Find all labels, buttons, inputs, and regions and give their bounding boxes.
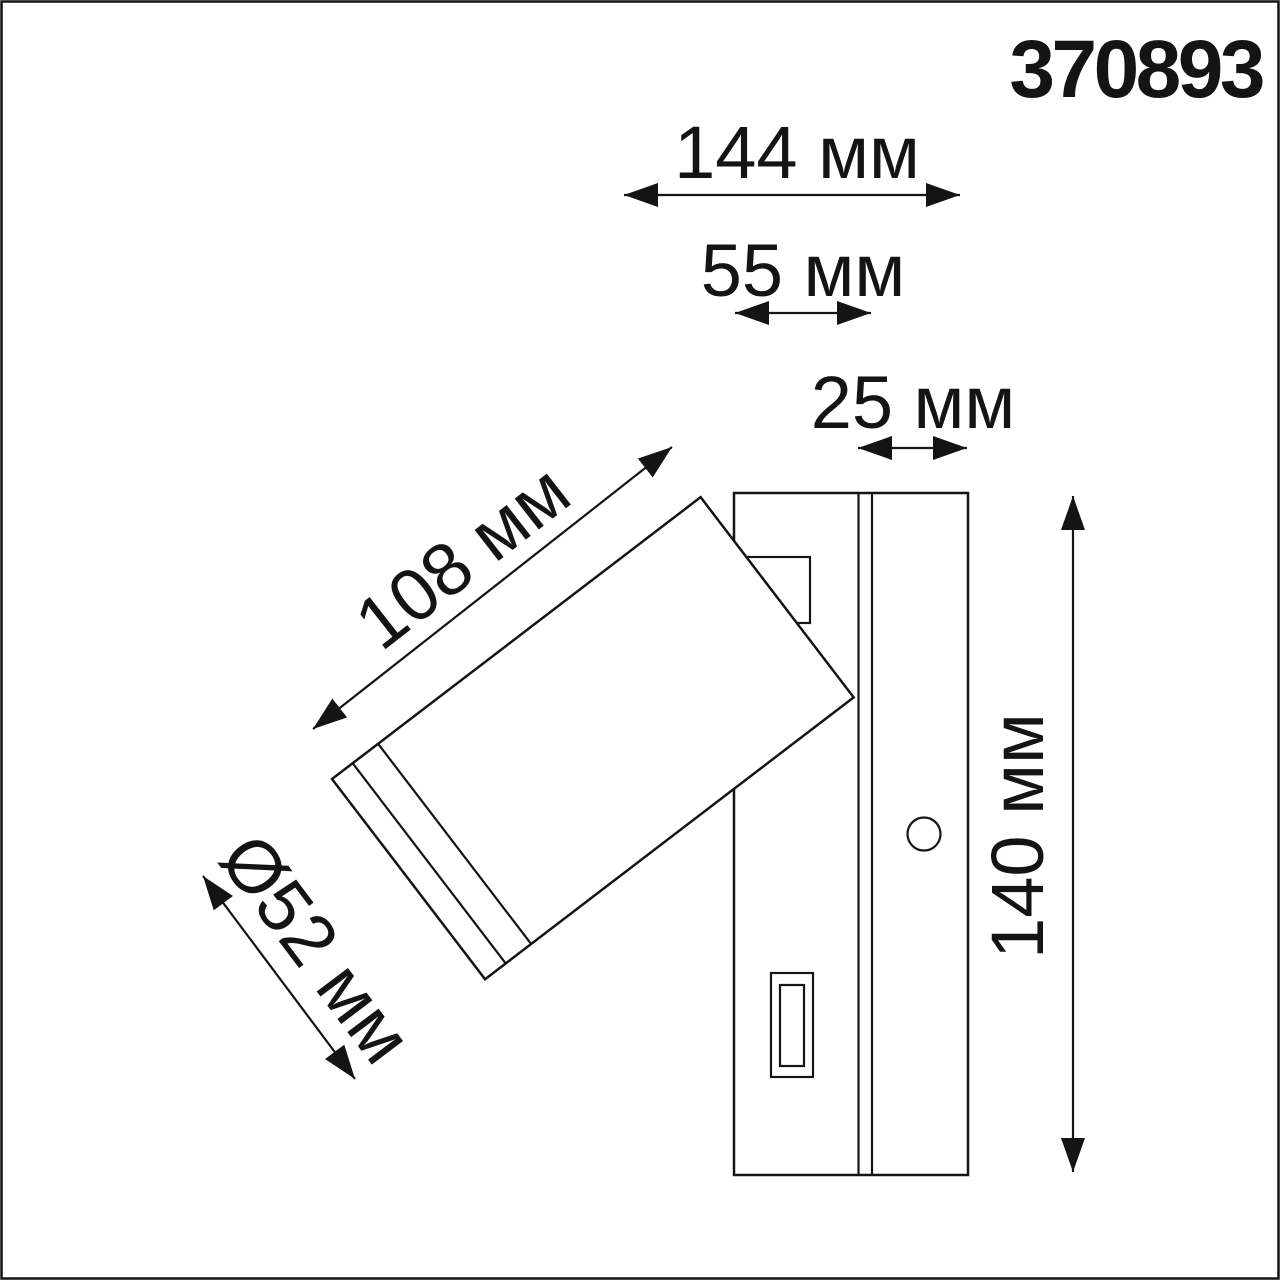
- dimension-height: 140 мм: [976, 496, 1073, 1172]
- technical-drawing-page: 370893 144 мм 55 мм: [0, 0, 1280, 1280]
- dimension-height-label: 140 мм: [976, 713, 1059, 959]
- dimension-plate-depth: 25 мм: [811, 361, 1016, 448]
- dimension-total-depth-label: 144 мм: [674, 111, 920, 194]
- product-code: 370893: [1009, 24, 1263, 115]
- dimension-housing-depth-label: 55 мм: [701, 229, 906, 312]
- dimension-plate-depth-label: 25 мм: [811, 361, 1016, 444]
- dimension-housing-depth: 55 мм: [701, 229, 906, 313]
- dimension-drawing-svg: 370893 144 мм 55 мм: [0, 0, 1280, 1280]
- dimension-total-depth: 144 мм: [624, 111, 960, 195]
